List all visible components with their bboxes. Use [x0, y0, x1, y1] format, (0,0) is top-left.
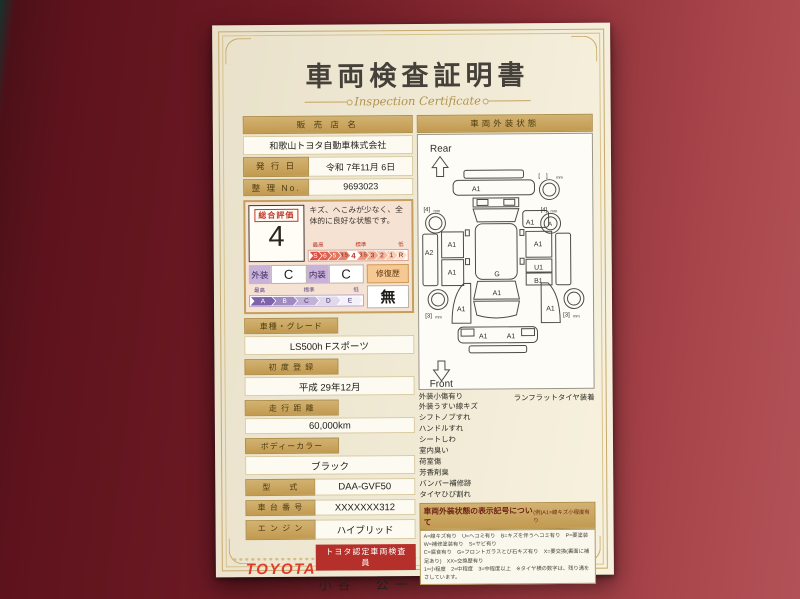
field-label: 初 度 登 録 [244, 359, 338, 376]
field-value: 60,000km [245, 416, 415, 434]
front-right-wheel [564, 288, 584, 308]
issue-date-row: 発 行 日 令和 7年11月 6日 [243, 156, 413, 177]
field-value: ブラック [245, 454, 415, 475]
field-mileage: 走 行 距 離 60,000km [245, 399, 415, 434]
field-chassis-number: 車 台 番 号 XXXXXXX312 [245, 498, 415, 516]
hood-shape [474, 300, 520, 317]
issue-date-value: 令和 7年11月 6日 [309, 156, 413, 176]
serial-number-value: 9693023 [309, 177, 413, 195]
spare-tire [539, 179, 559, 199]
legend-header: 車両外装状態の表示記号について [423, 505, 533, 528]
dealer-name: 和歌山トヨタ自動車株式会社 [243, 134, 413, 155]
field-label: 型 式 [245, 479, 315, 496]
spare-tread-value: [ ] [538, 173, 548, 179]
repair-history-value: 無 [367, 285, 409, 308]
mm-unit: mm [573, 313, 580, 318]
field-label: ボディーカラー [245, 438, 339, 455]
rear-right-tread-value: [4] [541, 207, 548, 213]
grade-scale-labels: 最高 標準 低 [249, 285, 364, 294]
mm-unit: mm [433, 208, 440, 213]
condition-list-area: 外装小傷有り 外装うすい線キズ シフトノブすれ ハンドルすれ シートしわ 室内臭… [419, 390, 596, 501]
exterior-value: C [271, 265, 307, 284]
mark-front-bumper-right: A1 [507, 333, 516, 340]
overall-scale-labels: 最高 標準 低 [308, 240, 409, 249]
serial-number-row: 整 理 No. 9693023 [243, 177, 413, 196]
mark-rear-bumper: A1 [472, 186, 481, 193]
mark-rear-right-wheel: A [548, 221, 552, 227]
mm-unit: mm [435, 314, 442, 319]
panel-mark [520, 229, 524, 235]
mark-left-fender: A1 [457, 306, 466, 313]
mark-right-rear-door: A1 [534, 241, 543, 248]
repair-history-label: 修復歴 [367, 264, 409, 283]
inspector-block: TOYOTA トヨタ認定車両検査員 小谷 公一 [246, 543, 416, 593]
mark-left-outer-panel: A2 [425, 249, 434, 256]
scale-best-label: 最高 [254, 286, 265, 294]
condition-item: 室内臭い [419, 446, 514, 458]
left-column: 販 売 店 名 和歌山トヨタ自動車株式会社 発 行 日 令和 7年11月 6日 … [243, 115, 417, 599]
headrest-shape [504, 199, 515, 205]
field-label: 車 台 番 号 [245, 499, 315, 516]
field-body-color: ボディーカラー ブラック [245, 437, 415, 475]
field-value: ハイブリッド [316, 519, 416, 539]
mark-right-fender: A1 [546, 305, 555, 312]
field-label: エ ン ジ ン [246, 520, 316, 540]
grade-step: B [272, 296, 297, 305]
certificate-title: 車両検査証明書 [242, 53, 592, 94]
rear-direction-label: Rear [430, 143, 452, 154]
scale-low-label: 低 [353, 285, 359, 293]
field-value: LS500h Fスポーツ [244, 334, 414, 355]
front-grille-shape [469, 345, 527, 352]
exterior-state-header: 車両外装状態 [417, 114, 593, 133]
interior-label: 内装 [306, 265, 328, 284]
runflat-tire-note: ランフラットタイヤ装着 [514, 390, 596, 500]
inspector-name: 小谷 公一 [316, 573, 416, 593]
front-left-wheel-rim [432, 293, 445, 306]
headrest-shape [477, 199, 488, 205]
grade-step: C [294, 296, 319, 305]
condition-item: タイヤひび割れ [419, 489, 514, 501]
headlight-shape [522, 328, 535, 335]
condition-comment: キズ、へこみが少なく、全体的に良好な状態です。 [307, 204, 408, 241]
flourish-line [489, 100, 531, 101]
field-label: 走 行 距 離 [245, 400, 339, 417]
overall-rating-box: 総合評価 4 [248, 205, 304, 262]
field-first-registration: 初 度 登 録 平成 29年12月 [244, 358, 414, 396]
mm-unit: mm [551, 208, 558, 213]
field-label: 車種・グレード [244, 318, 338, 335]
mm-unit: mm [556, 174, 563, 179]
field-model-code: 型 式 DAA-GVF50 [245, 478, 415, 496]
legend-line: 1=小程度 2=中程度 3=中程度以上 ※タイヤ横の数字は、残り溝をさしています… [424, 565, 592, 583]
condition-item: ハンドルすれ [419, 424, 514, 436]
panel-mark [466, 258, 470, 264]
grade-scale: A B C D E [249, 294, 364, 307]
mark-right-door-upper: U1 [534, 264, 543, 271]
evaluation-box: 総合評価 4 キズ、へこみが少なく、全体的に良好な状態です。 最高 標準 低 [243, 199, 414, 314]
panel-mark [520, 258, 524, 264]
grade-step: E [338, 296, 363, 305]
mark-roof: G [494, 271, 499, 278]
overall-rating-value: 4 [268, 222, 284, 253]
legend-header-band: 車両外装状態の表示記号について (例)A1=線キズ小程度有り [419, 502, 595, 530]
certified-inspector-badge: トヨタ認定車両検査員 [316, 543, 416, 570]
mark-right-quarter: A1 [526, 219, 535, 226]
panel-mark [465, 229, 469, 235]
certificate-title-block: 車両検査証明書 Inspection Certificate [242, 53, 592, 109]
inspection-certificate-document: 車両検査証明書 Inspection Certificate 販 売 店 名 和… [212, 23, 614, 578]
mark-windshield: A1 [493, 290, 502, 297]
condition-item: シートしわ [419, 435, 514, 447]
scale-step: S [309, 251, 322, 260]
interior-value: C [328, 264, 364, 283]
front-left-wheel [428, 289, 448, 309]
serial-number-label: 整 理 No. [243, 178, 309, 196]
condition-item: 荷室傷 [419, 457, 514, 469]
car-diagram-box: Rear Front A1 [ ] mm [4] mm [4] mm A A1 … [417, 132, 595, 389]
legend-line: A=線キズ有り U=ヘコミ有り B=キズを伴うヘコミ有り P=要塗装 W=補修塗… [424, 532, 592, 550]
condition-item: 芳香剤臭 [419, 467, 514, 479]
field-value: XXXXXXX312 [315, 498, 415, 515]
field-model-grade: 車種・グレード LS500h Fスポーツ [244, 317, 414, 355]
grade-step: A [250, 296, 275, 305]
right-outer-panel-shape [556, 233, 571, 285]
car-diagram: Rear Front A1 [ ] mm [4] mm [4] mm A A1 … [418, 133, 594, 388]
exterior-label: 外装 [249, 265, 271, 284]
certificate-subtitle: Inspection Certificate [354, 94, 481, 109]
grade-step: D [316, 296, 341, 305]
rear-left-tread-value: [4] [423, 207, 430, 213]
field-value: DAA-GVF50 [315, 478, 415, 495]
left-outer-panel-shape [423, 234, 438, 286]
front-direction-label: Front [430, 378, 453, 388]
right-column: 車両外装状態 [417, 114, 597, 599]
right-fender-shape [541, 282, 560, 322]
legend-box: A=線キズ有り U=ヘコミ有り B=キズを伴うヘコミ有り P=要塗装 W=補修塗… [420, 529, 596, 585]
legend-line: C=腐食有り G=フロントガラスとび石キズ有り X=要交換(裏面に補足あり) X… [424, 548, 592, 566]
toyota-logo: TOYOTA [246, 560, 316, 577]
scale-best-label: 最高 [313, 241, 324, 249]
rear-left-wheel-rim [429, 216, 442, 229]
rear-window-shape [473, 208, 519, 221]
overall-rating-scale: S 6 5 4.5 4 3.5 3 2 1 R [308, 249, 409, 262]
front-right-tread-value: [3] [563, 312, 570, 318]
condition-item: 外装うすい線キズ [419, 402, 514, 414]
certificate-subtitle-row: Inspection Certificate [243, 93, 593, 109]
mark-right-door-lower: B1 [534, 277, 543, 284]
left-fender-shape [452, 283, 471, 323]
mark-front-bumper-left: A1 [479, 333, 488, 340]
field-engine: エ ン ジ ン ハイブリッド [246, 519, 416, 540]
front-left-tread-value: [3] [425, 313, 432, 319]
condition-item: シフトノブすれ [419, 413, 514, 425]
condition-item: バンパー補修跡 [419, 478, 514, 490]
field-value: 平成 29年12月 [245, 375, 415, 396]
spare-tire-rim [543, 183, 556, 196]
trunk-shape [464, 169, 524, 177]
rear-arrow-icon [432, 156, 448, 176]
dealer-header: 販 売 店 名 [243, 115, 413, 134]
exterior-interior-row: 外装 C 内装 C [249, 264, 364, 284]
flourish-line [304, 101, 346, 102]
condition-list: 外装小傷有り 外装うすい線キズ シフトノブすれ ハンドルすれ シートしわ 室内臭… [419, 391, 515, 501]
scale-standard-label: 標準 [355, 240, 366, 248]
front-right-wheel-rim [567, 292, 580, 305]
mark-left-front-door: A1 [448, 269, 457, 276]
legend-example: (例)A1=線キズ小程度有り [533, 507, 591, 523]
issue-date-label: 発 行 日 [243, 157, 309, 177]
rear-left-wheel [426, 213, 446, 233]
scale-standard-label: 標準 [304, 286, 315, 294]
scale-low-label: 低 [398, 240, 404, 248]
headlight-shape [461, 329, 474, 336]
mark-left-rear-door: A1 [448, 241, 457, 248]
condition-item: 外装小傷有り [419, 391, 514, 403]
rear-bumper-shape [453, 179, 534, 194]
